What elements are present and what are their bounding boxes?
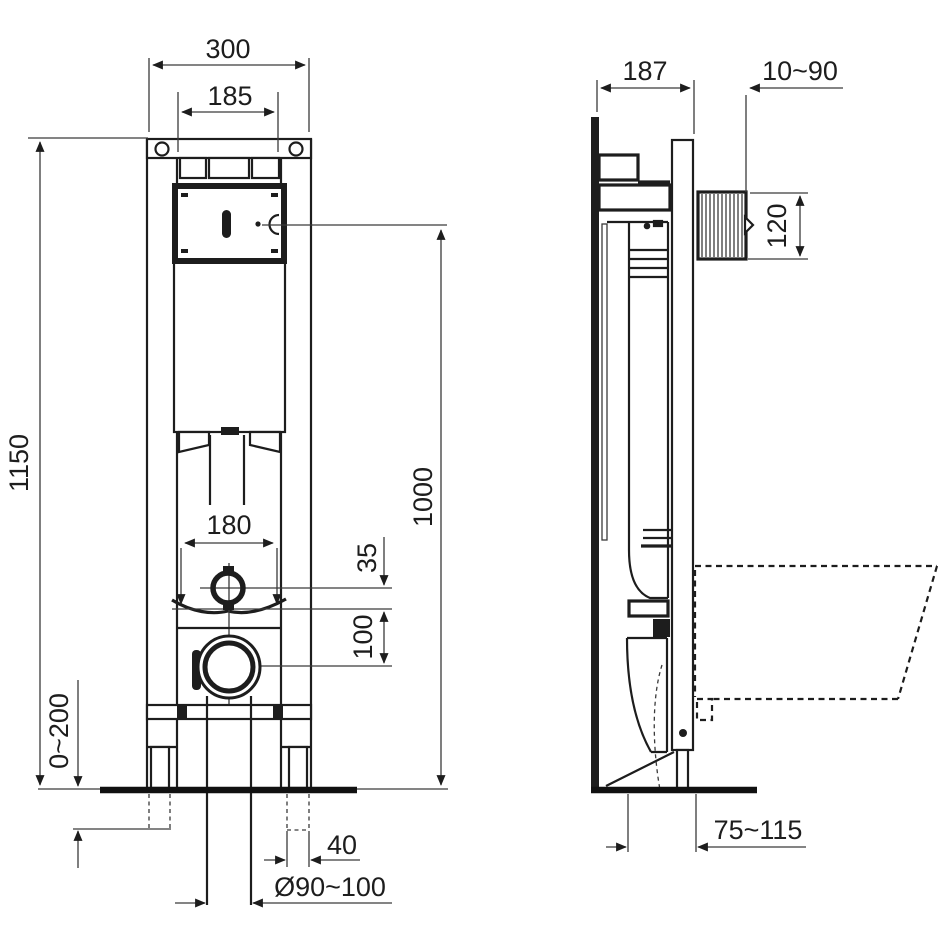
technical-drawing-canvas: 300 185 1150 1000 180 35 — [0, 0, 950, 950]
dim-outlet-stub-width: 40 — [264, 830, 360, 867]
svg-text:1000: 1000 — [408, 467, 438, 527]
cistern-front — [174, 261, 285, 432]
svg-text:40: 40 — [327, 830, 357, 860]
svg-text:187: 187 — [622, 56, 667, 86]
technical-drawing: 300 185 1150 1000 180 35 — [0, 0, 950, 950]
foot-extension-left — [149, 794, 170, 828]
floor-line — [38, 789, 448, 790]
front-view: 300 185 1150 1000 180 35 — [4, 34, 448, 905]
adjustable-feet — [147, 747, 311, 788]
dim-wall-finish-range: 10~90 — [746, 56, 843, 192]
hose-nipple-dot — [255, 221, 260, 226]
svg-text:185: 185 — [207, 81, 252, 111]
side-view: 187 10~90 120 75~115 — [591, 56, 937, 852]
plate-corner-tab — [181, 249, 188, 253]
dim-outlet-offset: 100 — [348, 612, 384, 663]
crossbar-lower — [147, 705, 311, 719]
diagonal-brace — [606, 752, 674, 786]
dim-frame-depth: 187 — [597, 56, 694, 134]
svg-text:1150: 1150 — [4, 434, 34, 492]
toilet-bowl-outline — [695, 566, 937, 720]
flush-bend-block — [698, 192, 753, 259]
dim-overall-height: 1150 — [4, 138, 148, 785]
svg-text:300: 300 — [205, 34, 250, 64]
flush-plate — [175, 186, 284, 261]
frame-front-rail — [672, 140, 693, 750]
crossbar-clamp-left — [177, 706, 187, 718]
crossbar-clamp-right — [273, 706, 283, 718]
plate-corner-tab — [271, 249, 278, 253]
top-wall-bracket — [599, 155, 670, 210]
svg-text:75~115: 75~115 — [714, 815, 803, 845]
outlet-clamp-side — [653, 619, 670, 637]
svg-text:100: 100 — [348, 614, 378, 659]
top-fixing-hole-left — [156, 143, 169, 156]
svg-text:10~90: 10~90 — [762, 56, 838, 86]
svg-text:0~200: 0~200 — [44, 693, 74, 769]
plate-corner-tab — [181, 193, 188, 197]
svg-text:35: 35 — [352, 543, 382, 573]
top-bracket-row — [180, 158, 279, 178]
dim-flush-bend-height: 120 — [748, 193, 808, 259]
flush-pipe — [210, 435, 244, 505]
cistern-bottom-bracket-left — [179, 432, 209, 452]
outlet-bracket-side — [629, 601, 668, 616]
dim-leg-adjustment: 0~200 — [44, 680, 78, 868]
front-rail-foot — [677, 750, 688, 790]
svg-text:180: 180 — [206, 510, 251, 540]
dim-flush-plate-height: 1000 — [408, 230, 441, 785]
flush-button — [222, 210, 231, 238]
wall-rail — [591, 117, 599, 790]
foot-bolt — [679, 729, 687, 737]
svg-text:Ø90~100: Ø90~100 — [274, 872, 386, 902]
cistern-bottom-bracket-right — [250, 432, 280, 452]
cistern-side — [602, 221, 673, 598]
dim-inlet-offset: 35 — [352, 537, 384, 585]
waste-outlet-bend — [192, 636, 260, 905]
outlet-pipe-side — [627, 638, 667, 752]
cistern-bottom-notch — [221, 427, 239, 435]
dim-floor-outlet-distance: 75~115 — [606, 794, 806, 852]
svg-text:120: 120 — [762, 203, 792, 248]
plate-corner-tab — [271, 193, 278, 197]
foot-extension-right — [287, 794, 309, 830]
top-fixing-hole-right — [290, 143, 303, 156]
outlet-pipe-hidden — [654, 665, 662, 790]
